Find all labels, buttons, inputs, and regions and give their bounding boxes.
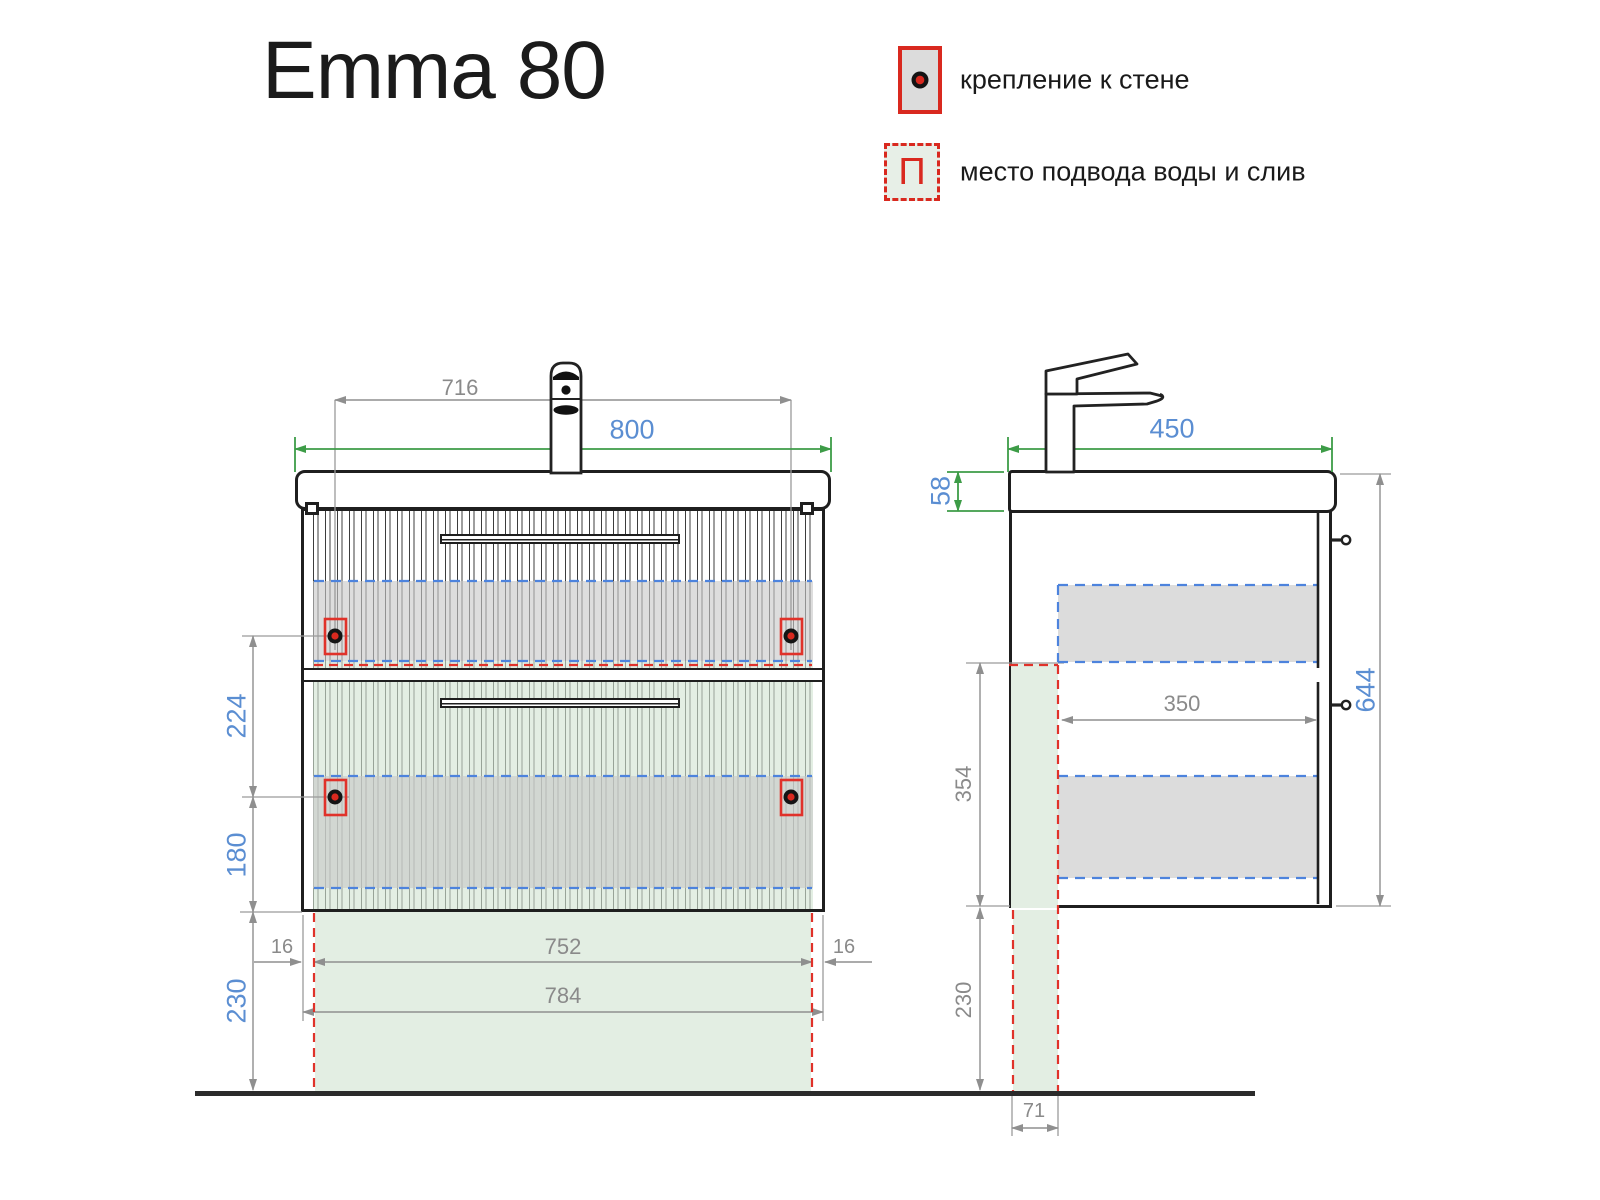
water-zone-icon: П <box>898 153 925 191</box>
dim-784-label: 784 <box>545 985 582 1007</box>
front-right-clip <box>800 502 814 515</box>
dim-230-front-label: 230 <box>224 978 251 1023</box>
dim-224-label: 224 <box>224 693 251 738</box>
dim-752-label: 752 <box>545 936 582 958</box>
side-mount-band-upper <box>1058 585 1318 662</box>
dim-354-label: 354 <box>953 766 975 803</box>
wall-mount-dot-icon <box>912 72 929 89</box>
front-basin-top <box>295 470 831 510</box>
dim-644-label: 644 <box>1353 667 1380 712</box>
technical-drawing-emma-80: Emma 80 крепление к стене П место подвод… <box>0 0 1600 1200</box>
front-drawer2-handle <box>440 698 680 708</box>
legend-wall-mount-symbol <box>898 46 942 114</box>
dim-16-left-label: 16 <box>271 937 293 957</box>
dim-16-right-label: 16 <box>833 937 855 957</box>
legend-wall-mount-label: крепление к стене <box>960 65 1190 96</box>
page-title: Emma 80 <box>262 30 606 112</box>
front-drawer-divider <box>304 668 822 682</box>
front-mount-band-upper <box>313 581 813 661</box>
front-mount-band-lower <box>313 776 813 888</box>
faucet-front-icon <box>551 363 581 473</box>
dim-800-label: 800 <box>609 417 654 444</box>
side-mount-band-lower <box>1058 776 1318 878</box>
dim-71-label: 71 <box>1023 1101 1045 1121</box>
side-basin-top <box>1008 470 1337 513</box>
dim-58-label: 58 <box>928 476 955 506</box>
side-water-strip <box>1011 664 1058 908</box>
dim-350-label: 350 <box>1164 693 1201 715</box>
floor-line <box>195 1091 1255 1096</box>
faucet-side-icon <box>1046 354 1163 472</box>
legend-water-zone-symbol: П <box>884 143 940 201</box>
dim-716-label: 716 <box>442 377 479 399</box>
dim-450-label: 450 <box>1149 416 1194 443</box>
front-drawer1-handle <box>440 534 680 544</box>
front-left-clip <box>305 502 319 515</box>
side-water-strip-below <box>1013 910 1058 1092</box>
dim-180-label: 180 <box>224 832 251 877</box>
dim-230-side-label: 230 <box>953 982 975 1019</box>
legend-water-zone-label: место подвода воды и слив <box>960 157 1306 188</box>
front-width-dim-green <box>295 437 831 472</box>
side-handle-pins <box>1332 536 1350 709</box>
